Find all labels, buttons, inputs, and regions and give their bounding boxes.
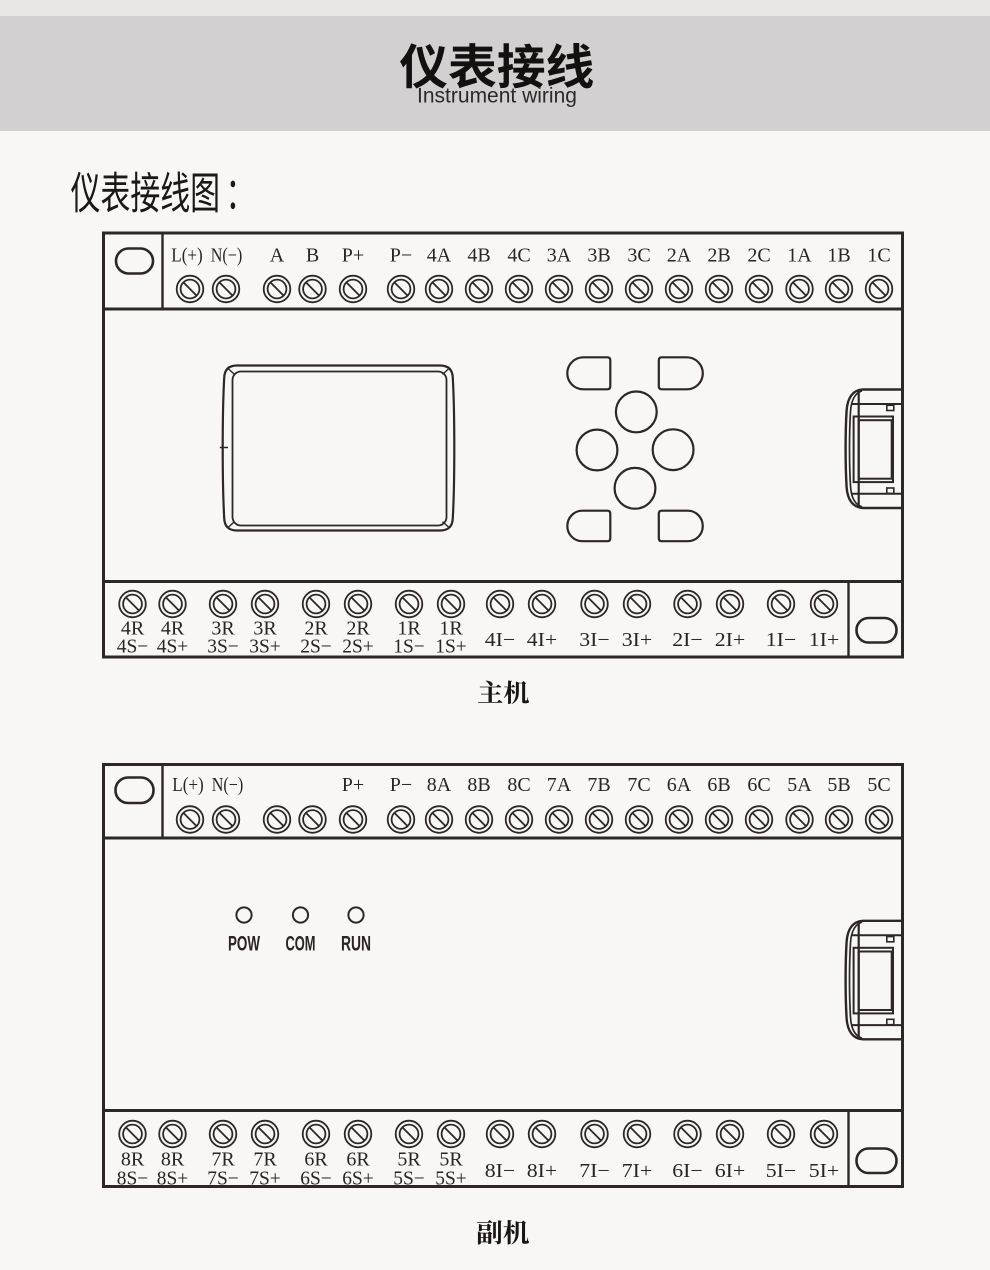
svg-text:1S+: 1S+ xyxy=(435,636,467,658)
svg-text:1S−: 1S− xyxy=(393,636,425,658)
svg-text:1A: 1A xyxy=(787,245,812,267)
svg-text:A: A xyxy=(270,245,285,267)
svg-text:8I+: 8I+ xyxy=(527,1160,558,1182)
svg-text:8A: 8A xyxy=(427,774,452,796)
svg-text:6I+: 6I+ xyxy=(715,1160,746,1182)
svg-text:2S+: 2S+ xyxy=(342,636,374,658)
svg-text:2S−: 2S− xyxy=(300,636,332,658)
svg-text:B: B xyxy=(306,245,319,267)
svg-text:P−: P− xyxy=(390,245,412,267)
svg-text:6I−: 6I− xyxy=(672,1160,703,1182)
svg-text:2C: 2C xyxy=(747,245,770,267)
svg-text:6A: 6A xyxy=(667,774,692,796)
svg-text:POW: POW xyxy=(228,933,260,956)
svg-text:8I−: 8I− xyxy=(485,1160,516,1182)
svg-text:5S−: 5S− xyxy=(393,1168,425,1190)
svg-text:5I−: 5I− xyxy=(766,1160,797,1182)
svg-text:7B: 7B xyxy=(587,774,610,796)
svg-text:4C: 4C xyxy=(507,245,530,267)
svg-text:3I+: 3I+ xyxy=(622,629,653,651)
svg-text:6B: 6B xyxy=(707,774,730,796)
svg-text:L(+): L(+) xyxy=(172,774,204,796)
svg-text:2B: 2B xyxy=(707,245,730,267)
svg-text:COM: COM xyxy=(286,933,316,956)
svg-text:4S+: 4S+ xyxy=(157,636,189,658)
svg-text:8B: 8B xyxy=(467,774,490,796)
svg-text:3A: 3A xyxy=(547,245,572,267)
svg-text:RUN: RUN xyxy=(341,933,371,956)
svg-text:3S−: 3S− xyxy=(207,636,239,658)
svg-text:7A: 7A xyxy=(547,774,572,796)
svg-text:8S+: 8S+ xyxy=(157,1168,189,1190)
svg-text:1B: 1B xyxy=(827,245,850,267)
svg-text:3I−: 3I− xyxy=(579,629,610,651)
svg-text:L(+): L(+) xyxy=(171,245,203,267)
svg-text:5A: 5A xyxy=(787,774,812,796)
svg-text:1I+: 1I+ xyxy=(809,629,840,651)
svg-text:P−: P− xyxy=(390,774,412,796)
svg-text:7I−: 7I− xyxy=(579,1160,610,1182)
svg-text:6C: 6C xyxy=(747,774,770,796)
svg-text:1C: 1C xyxy=(867,245,890,267)
svg-text:2I−: 2I− xyxy=(672,629,703,651)
svg-text:7C: 7C xyxy=(627,774,650,796)
svg-text:Instrument wiring: Instrument wiring xyxy=(417,85,577,108)
svg-text:N(−): N(−) xyxy=(212,774,244,796)
svg-text:8S−: 8S− xyxy=(117,1168,149,1190)
svg-text:2I+: 2I+ xyxy=(715,629,746,651)
svg-text:3B: 3B xyxy=(587,245,610,267)
svg-text:2A: 2A xyxy=(667,245,692,267)
svg-text:N(−): N(−) xyxy=(211,245,243,267)
svg-text:3C: 3C xyxy=(627,245,650,267)
svg-text:8C: 8C xyxy=(507,774,530,796)
svg-text:4S−: 4S− xyxy=(117,636,149,658)
svg-text:7S+: 7S+ xyxy=(249,1168,281,1190)
svg-text:5I+: 5I+ xyxy=(809,1160,840,1182)
svg-text:5S+: 5S+ xyxy=(435,1168,467,1190)
svg-text:7S−: 7S− xyxy=(207,1168,239,1190)
svg-text:5C: 5C xyxy=(867,774,890,796)
svg-text:3S+: 3S+ xyxy=(249,636,281,658)
svg-text:6S−: 6S− xyxy=(300,1168,332,1190)
svg-text:4I+: 4I+ xyxy=(527,629,558,651)
svg-text:1I−: 1I− xyxy=(766,629,797,651)
svg-text:4A: 4A xyxy=(427,245,452,267)
svg-text:4B: 4B xyxy=(467,245,490,267)
svg-text:7I+: 7I+ xyxy=(622,1160,653,1182)
svg-text:4I−: 4I− xyxy=(485,629,516,651)
svg-text:P+: P+ xyxy=(342,245,364,267)
svg-text:5B: 5B xyxy=(827,774,850,796)
svg-text:P+: P+ xyxy=(342,774,364,796)
svg-text:6S+: 6S+ xyxy=(342,1168,374,1190)
